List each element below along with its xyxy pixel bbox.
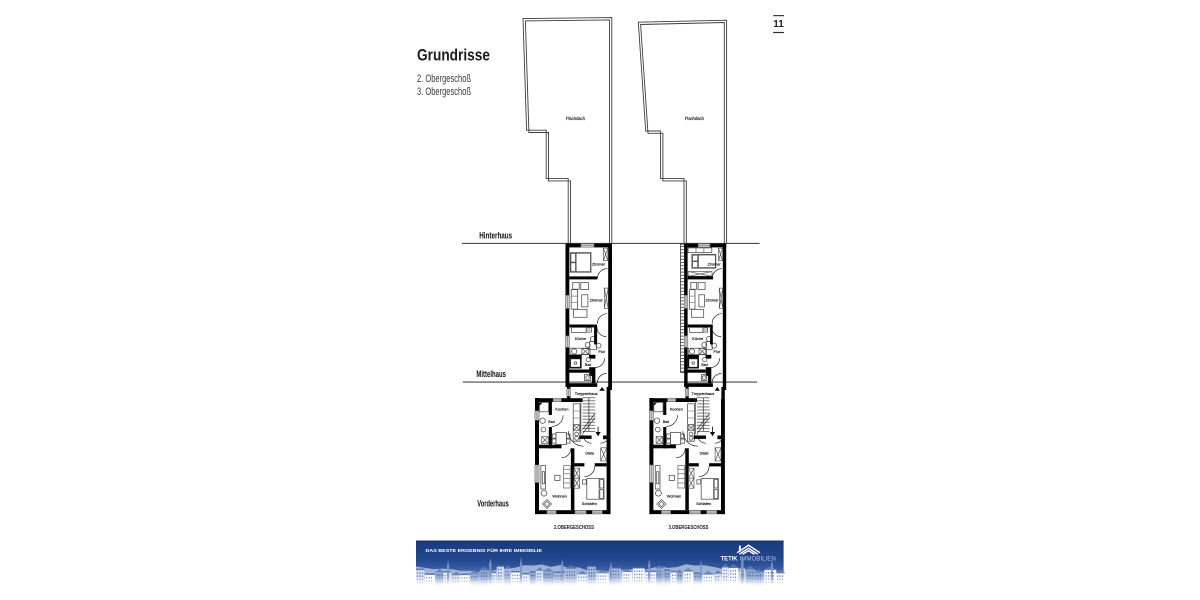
- svg-text:11: 11: [773, 19, 784, 30]
- svg-text:Wohnen: Wohnen: [552, 494, 566, 499]
- svg-text:Kochen: Kochen: [555, 406, 568, 411]
- svg-text:Bad: Bad: [663, 420, 669, 424]
- svg-text:Treppenhaus: Treppenhaus: [692, 391, 715, 396]
- svg-text:2. Obergeschoß: 2. Obergeschoß: [417, 73, 471, 85]
- svg-text:Bad: Bad: [701, 363, 707, 367]
- svg-text:Zimmer: Zimmer: [590, 298, 604, 303]
- svg-text:Flur: Flur: [714, 349, 721, 354]
- svg-text:Bad: Bad: [585, 363, 591, 367]
- svg-text:3. Obergeschoß: 3. Obergeschoß: [417, 86, 471, 98]
- svg-text:Hinterhaus: Hinterhaus: [479, 231, 512, 241]
- svg-text:Schlafen: Schlafen: [696, 501, 711, 506]
- svg-text:Flachdach: Flachdach: [566, 116, 586, 121]
- svg-text:Wohnen: Wohnen: [667, 494, 681, 499]
- svg-text:Vorderhaus: Vorderhaus: [477, 498, 509, 508]
- svg-text:Bad: Bad: [548, 420, 554, 424]
- svg-text:Küche: Küche: [575, 336, 586, 341]
- svg-text:Mittelhaus: Mittelhaus: [476, 369, 506, 379]
- svg-text:3.OBERGESCHOSS: 3.OBERGESCHOSS: [669, 525, 709, 531]
- svg-text:KS: KS: [704, 329, 708, 332]
- svg-text:Diele: Diele: [700, 451, 709, 456]
- svg-text:Zimmer: Zimmer: [592, 261, 606, 266]
- svg-text:Diele: Diele: [585, 451, 594, 456]
- svg-text:KS: KS: [587, 329, 591, 332]
- svg-text:Küche: Küche: [692, 336, 703, 341]
- svg-text:Flur: Flur: [598, 349, 605, 354]
- svg-text:Kochen: Kochen: [670, 406, 683, 411]
- svg-text:Zimmer: Zimmer: [708, 261, 722, 266]
- svg-text:Grundrisse: Grundrisse: [417, 46, 490, 64]
- svg-text:DAS BESTE ERGEBNIS FÜR IHRE IM: DAS BESTE ERGEBNIS FÜR IHRE IMMOBILIE: [426, 547, 543, 554]
- svg-text:2.OBERGESCHOSS: 2.OBERGESCHOSS: [554, 525, 594, 531]
- svg-text:IMMOBILIEN: IMMOBILIEN: [740, 555, 776, 562]
- svg-text:Flachdach: Flachdach: [685, 116, 705, 121]
- svg-text:Treppenhaus: Treppenhaus: [575, 391, 598, 396]
- svg-text:Zimmer: Zimmer: [705, 298, 719, 303]
- svg-text:TETIK: TETIK: [721, 555, 738, 562]
- svg-text:Schlafen: Schlafen: [582, 501, 597, 506]
